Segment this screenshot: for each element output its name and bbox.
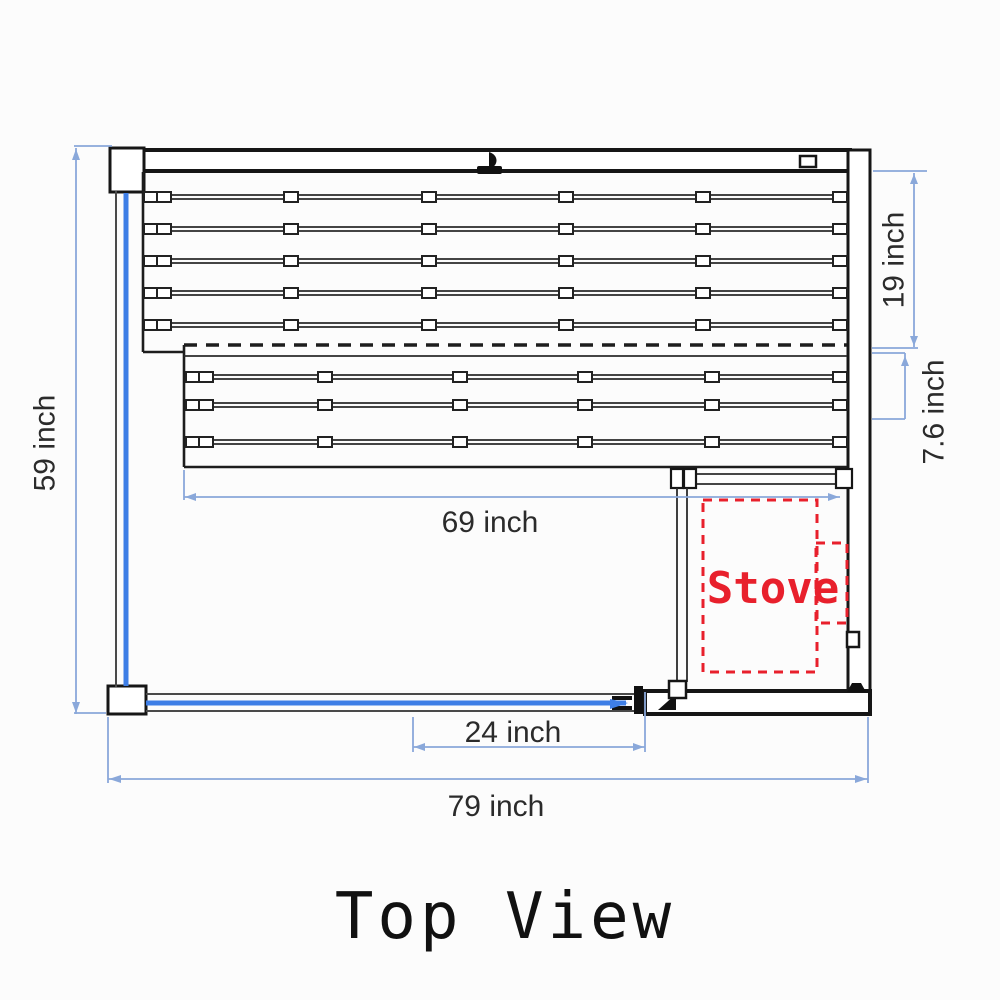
width-label: 79 inch [448, 790, 545, 823]
top-left-corner-post [110, 148, 144, 192]
dimension-19-inch: 19 inch [872, 171, 927, 348]
bench-length-label: 69 inch [442, 506, 539, 539]
dimension-69-inch: 69 inch [184, 470, 840, 539]
depth-label: 59 inch [29, 395, 62, 492]
dimension-59-inch: 59 inch [29, 146, 113, 714]
stove-area: Stove [703, 500, 847, 672]
vent-icon [800, 156, 816, 167]
upper-bench [143, 172, 847, 352]
right-wall [848, 150, 870, 712]
front-glass-wall [146, 694, 638, 711]
left-glass-wall [116, 191, 126, 687]
wall-latch-icon [847, 632, 859, 647]
floorplan-canvas: Stove 59 inch 79 inch 24 inch 69 inch [0, 0, 1000, 1000]
dimension-7-6-inch: 7.6 inch [872, 353, 951, 465]
upper-bench-slat-tabs [144, 192, 847, 330]
room-walls [108, 148, 870, 714]
bottom-left-corner-post [108, 686, 146, 714]
door-hinge [610, 686, 643, 714]
lower-bench-slat-tabs [186, 372, 847, 447]
upper-bench-depth-label: 19 inch [878, 212, 911, 309]
door-width-label: 24 inch [465, 716, 562, 749]
lower-bench [184, 345, 847, 467]
diagram-title: Top View [335, 880, 675, 954]
bench-gap-label: 7.6 inch [918, 359, 951, 464]
sauna-top-view-diagram: Stove 59 inch 79 inch 24 inch 69 inch [0, 0, 1000, 1000]
stove-label: Stove [707, 563, 839, 614]
